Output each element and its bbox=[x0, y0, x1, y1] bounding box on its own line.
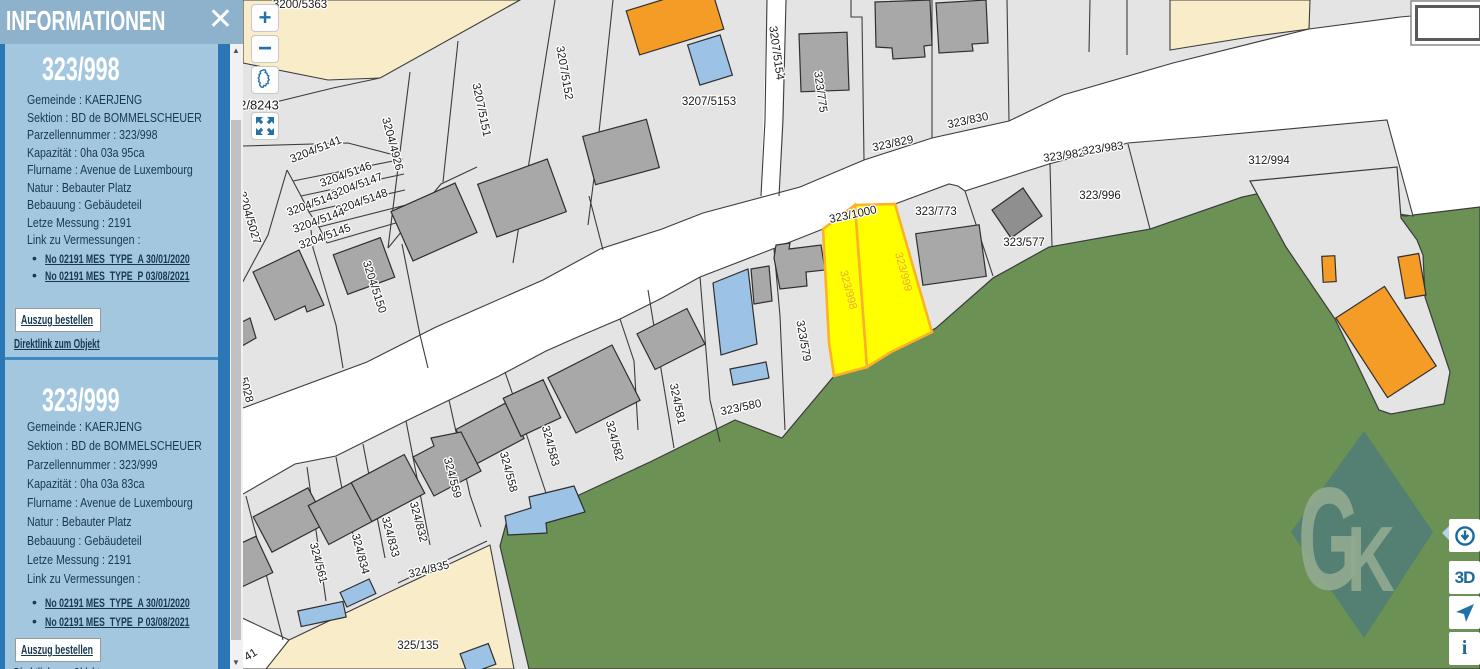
svg-text:323/996: 323/996 bbox=[1079, 190, 1121, 202]
svg-text:3200/5363: 3200/5363 bbox=[273, 0, 327, 11]
svg-text:323/577: 323/577 bbox=[1003, 237, 1045, 249]
svg-text:2/8243: 2/8243 bbox=[243, 97, 279, 112]
svg-text:K: K bbox=[1347, 507, 1395, 611]
svg-text:323/773: 323/773 bbox=[915, 206, 957, 218]
svg-text:312/994: 312/994 bbox=[1248, 155, 1290, 167]
svg-text:3207/5153: 3207/5153 bbox=[682, 96, 736, 108]
svg-text:325/135: 325/135 bbox=[397, 640, 439, 652]
